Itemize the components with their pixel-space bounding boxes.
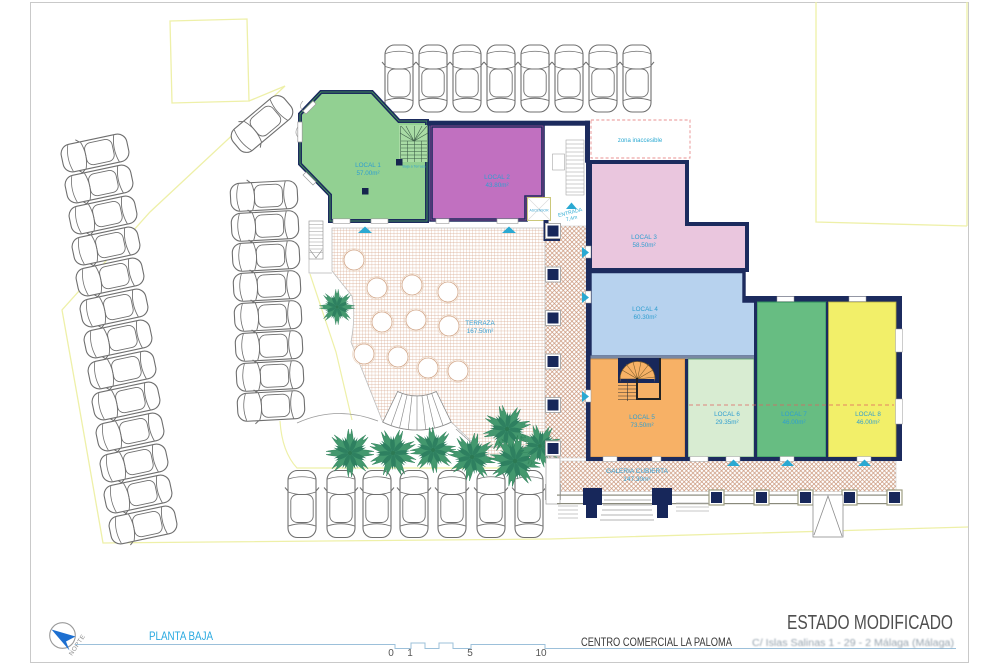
svg-text:ASCENSOR: ASCENSOR <box>529 209 549 213</box>
svg-text:CENTRO COMERCIAL LA PALOMA: CENTRO COMERCIAL LA PALOMA <box>581 637 732 649</box>
svg-text:C/ Islas Salinas 1 - 29 - 2 Má: C/ Islas Salinas 1 - 29 - 2 Málaga (Mála… <box>752 638 954 649</box>
svg-text:LOCAL 3: LOCAL 3 <box>631 234 657 241</box>
svg-text:LOCAL 8: LOCAL 8 <box>855 411 881 418</box>
svg-text:LOCAL 6: LOCAL 6 <box>714 411 740 418</box>
svg-text:73.50m²: 73.50m² <box>630 422 653 429</box>
svg-text:LOCAL 1: LOCAL 1 <box>355 162 381 169</box>
svg-text:Baja a Terraza: Baja a Terraza <box>402 165 425 169</box>
svg-text:10: 10 <box>535 648 547 659</box>
svg-text:60.30m²: 60.30m² <box>633 314 656 321</box>
svg-text:PLANTA BAJA: PLANTA BAJA <box>149 629 213 643</box>
svg-text:29.35m²: 29.35m² <box>715 419 738 426</box>
svg-text:167.50m²: 167.50m² <box>467 328 494 335</box>
svg-text:LOCAL 4: LOCAL 4 <box>632 306 658 313</box>
svg-text:zona inaccesible: zona inaccesible <box>618 138 663 144</box>
svg-text:TERRAZA: TERRAZA <box>465 320 495 327</box>
svg-text:58.50m²: 58.50m² <box>632 242 655 249</box>
svg-text:ESTADO MODIFICADO: ESTADO MODIFICADO <box>787 612 953 634</box>
svg-text:LOCAL 5: LOCAL 5 <box>629 414 655 421</box>
svg-text:5: 5 <box>467 648 473 659</box>
svg-text:46.00m²: 46.00m² <box>782 419 805 426</box>
svg-text:LOCAL 7: LOCAL 7 <box>781 411 807 418</box>
svg-text:GALERIA CUBIERTA: GALERIA CUBIERTA <box>606 468 669 475</box>
svg-text:0: 0 <box>388 648 394 659</box>
svg-text:43.80m²: 43.80m² <box>485 182 508 189</box>
svg-text:57.00m²: 57.00m² <box>356 170 379 177</box>
svg-text:147.30m²: 147.30m² <box>623 476 651 483</box>
svg-text:LOCAL 2: LOCAL 2 <box>484 174 510 181</box>
svg-text:46.00m²: 46.00m² <box>856 419 879 426</box>
svg-text:1: 1 <box>407 648 413 659</box>
